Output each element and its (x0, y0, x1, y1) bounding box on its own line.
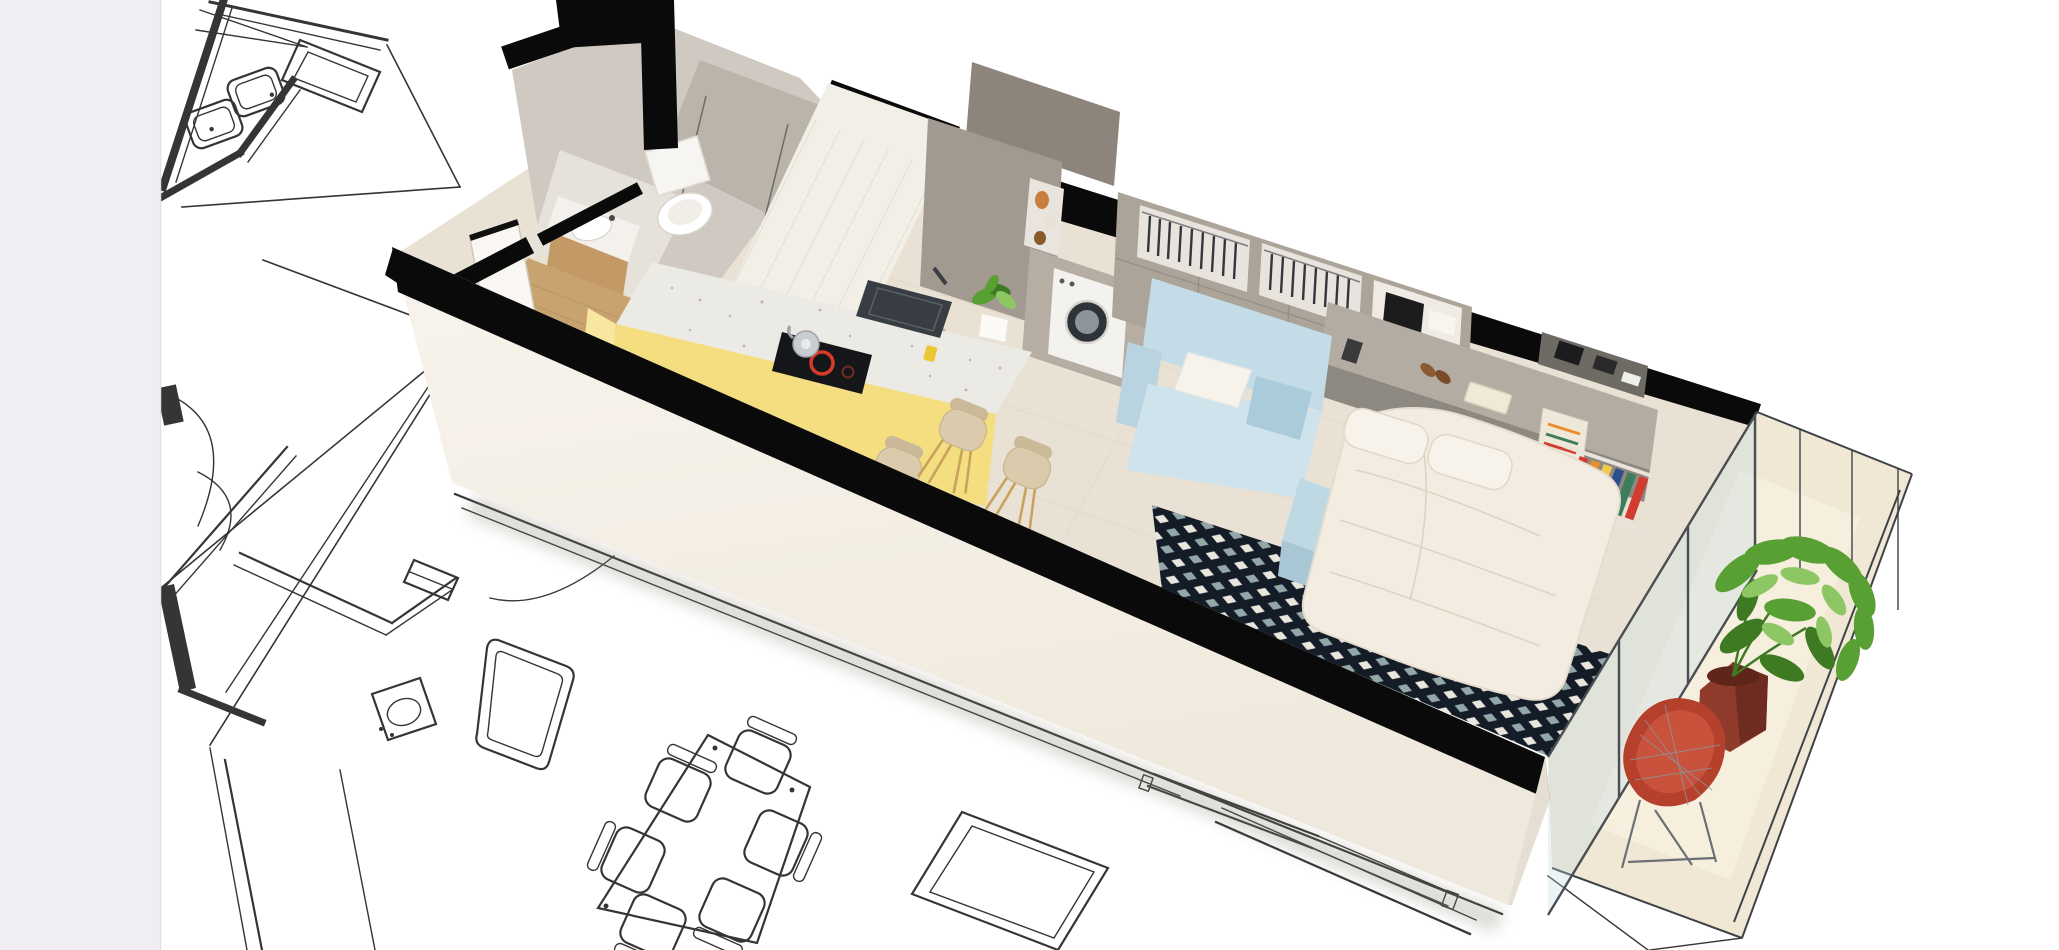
pasteboard-strip (0, 0, 160, 950)
vase (1034, 231, 1046, 245)
floorplan-render-canvas (0, 0, 2059, 950)
vase (1035, 191, 1049, 209)
vase (1044, 214, 1056, 230)
screenshot-root (0, 0, 2059, 950)
open-shelf (1024, 178, 1064, 256)
